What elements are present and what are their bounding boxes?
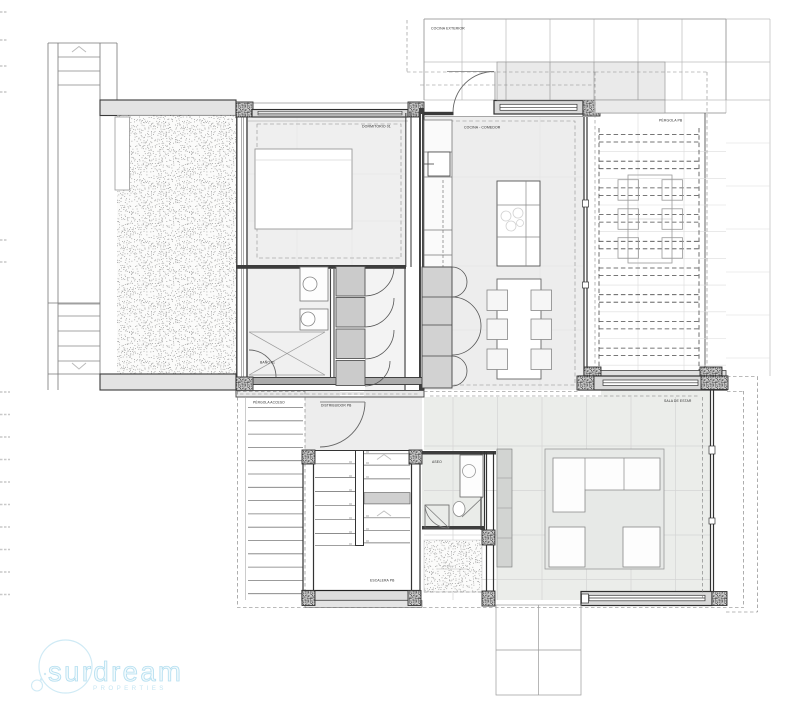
svg-text:DORMITORIO 01: DORMITORIO 01	[362, 125, 391, 129]
svg-text:PÉRGOLA ACCESO: PÉRGOLA ACCESO	[253, 400, 285, 405]
svg-text:COCINA - COMEDOR: COCINA - COMEDOR	[464, 126, 501, 130]
svg-text:ESCALERA PB: ESCALERA PB	[370, 579, 395, 583]
svg-text:PROPERTIES: PROPERTIES	[93, 685, 167, 692]
svg-text:SALA DE ESTAR: SALA DE ESTAR	[664, 399, 692, 403]
svg-text:ASEO: ASEO	[432, 460, 442, 464]
svg-text:+0.00 m: +0.00 m	[443, 564, 454, 568]
svg-text:PÉRGOLA PB: PÉRGOLA PB	[659, 118, 683, 123]
svg-text:DISTRIBUIDOR PB: DISTRIBUIDOR PB	[321, 404, 352, 408]
svg-text:surdream: surdream	[48, 656, 183, 687]
svg-text:COCINA EXTERIOR: COCINA EXTERIOR	[431, 27, 465, 31]
svg-text:BAÑO 01: BAÑO 01	[260, 360, 275, 365]
